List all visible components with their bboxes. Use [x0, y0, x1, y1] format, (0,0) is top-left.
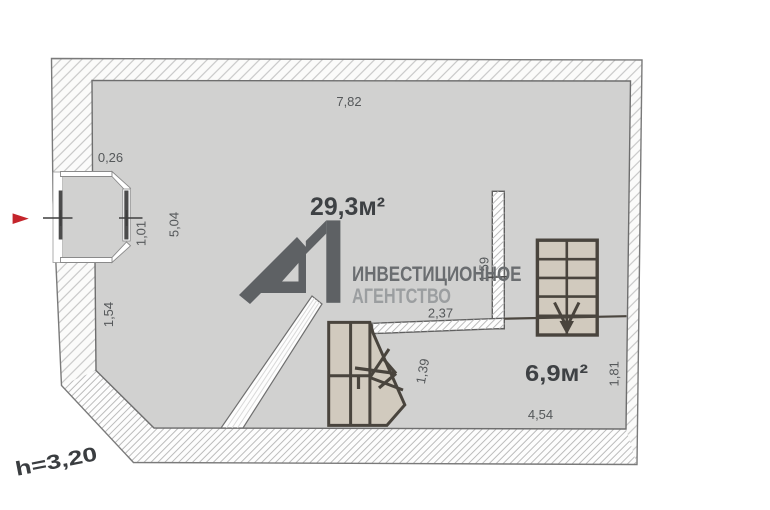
svg-text:7,82: 7,82	[336, 94, 361, 109]
svg-text:5,04: 5,04	[167, 212, 182, 237]
svg-text:ИНВЕСТИЦИОННОЕ: ИНВЕСТИЦИОННОЕ	[352, 263, 522, 286]
svg-text:6,9м²: 6,9м²	[525, 360, 588, 386]
svg-text:29,3м²: 29,3м²	[310, 193, 385, 221]
svg-text:4,54: 4,54	[528, 407, 553, 422]
svg-text:АГЕНТСТВО: АГЕНТСТВО	[352, 285, 451, 308]
svg-text:1,01: 1,01	[134, 221, 149, 246]
svg-text:1,81: 1,81	[607, 361, 622, 386]
svg-text:1,54: 1,54	[101, 302, 116, 327]
svg-text:0,26: 0,26	[98, 150, 123, 165]
